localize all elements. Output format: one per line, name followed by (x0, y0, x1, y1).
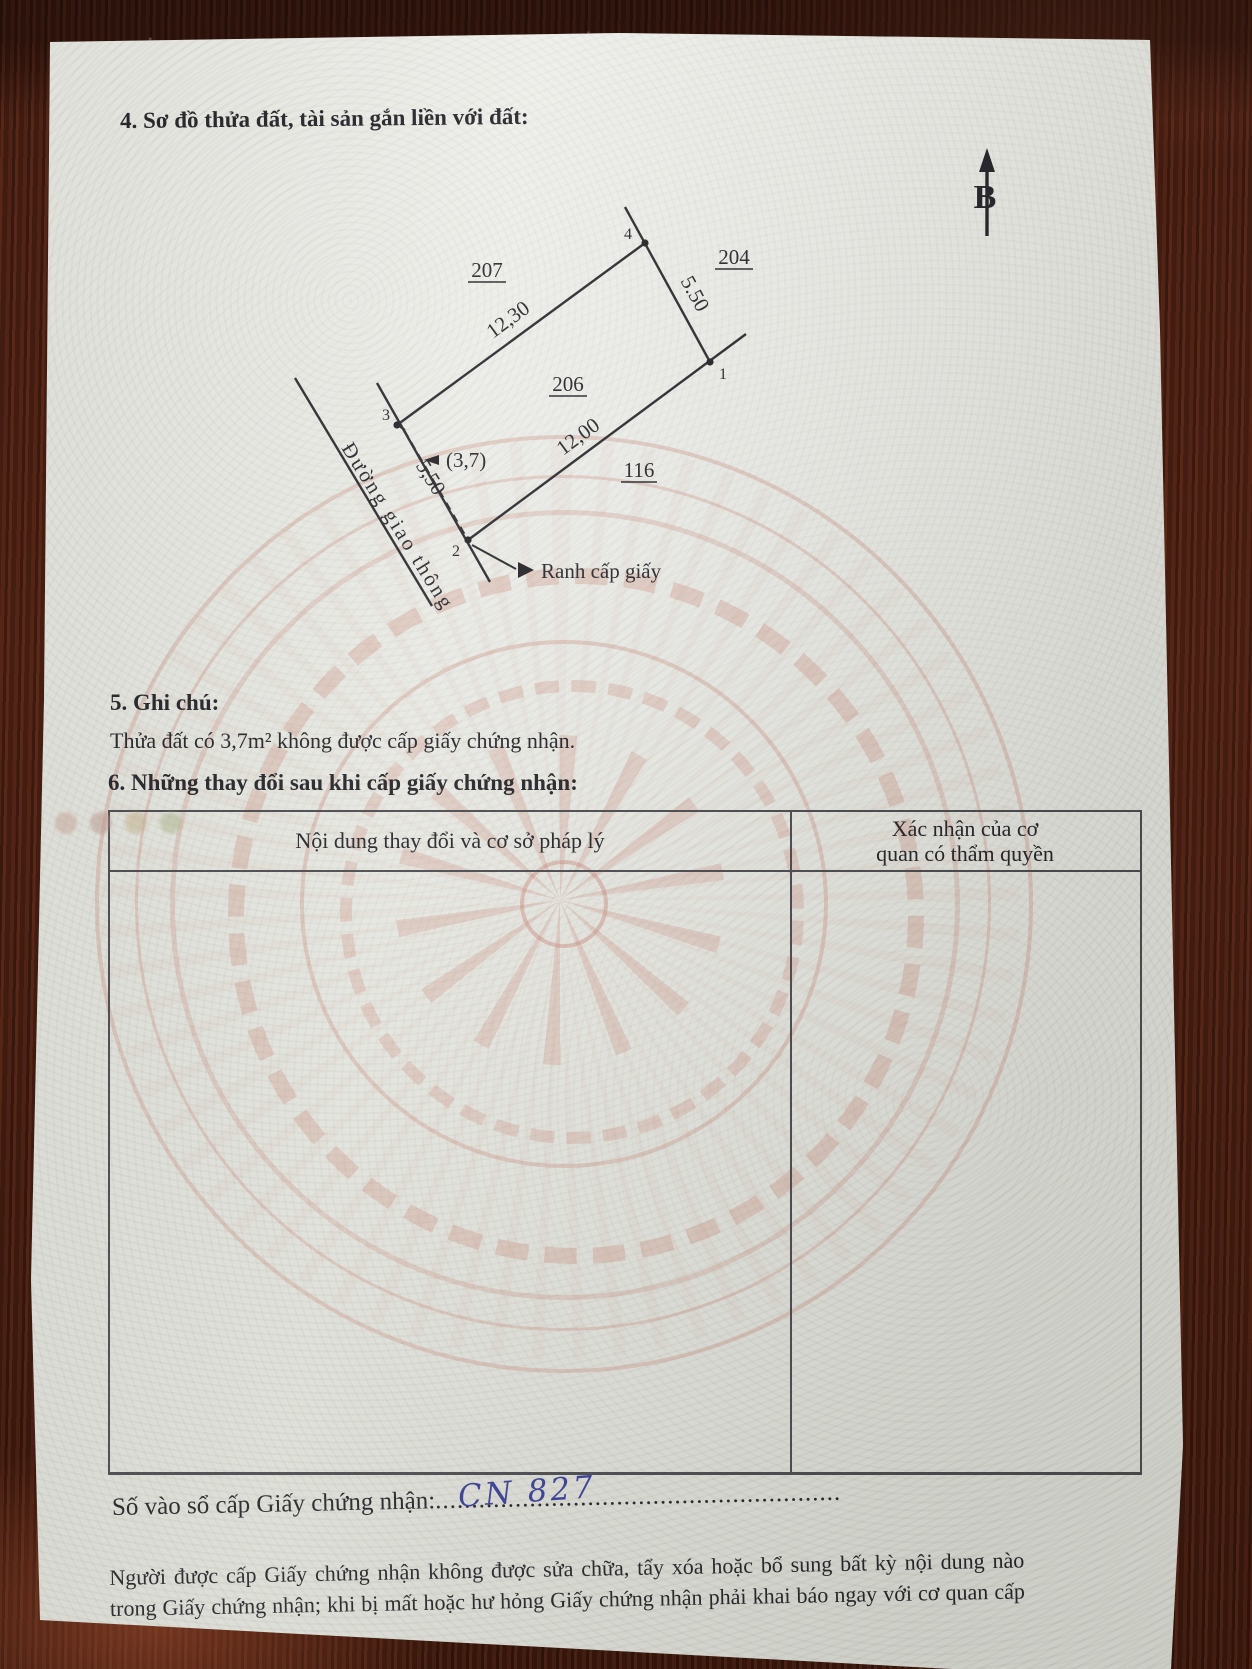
plot-side-2-1-extended (468, 334, 746, 540)
plot-side-3-4 (397, 243, 645, 425)
north-label: B (974, 179, 997, 216)
section5-title: 5. Ghi chú: (110, 690, 219, 716)
fist-emoji-icon (90, 812, 112, 834)
footer-note: Người được cấp Giấy chứng nhận không đượ… (109, 1544, 1026, 1655)
vertex-4-node (641, 239, 648, 246)
col2-header-line1: Xác nhận của cơ (892, 816, 1039, 841)
parcel-116-label: 116 (624, 458, 655, 482)
parcel-206-label: 206 (552, 372, 584, 396)
vertex-4-label: 4 (624, 226, 632, 243)
vertex-3-node (393, 421, 400, 428)
thumbs-up-emoji-icon (20, 812, 42, 834)
dim-side-3-4: 12,30 (482, 296, 534, 343)
vertex-1-label: 1 (719, 366, 727, 383)
north-arrow: B (968, 146, 1008, 238)
footer-note-line2: Giấy chứng nhận; khi bị mất hoặc hư hỏng… (110, 1579, 1025, 1653)
boundary-callout-arrow-icon (518, 562, 534, 578)
changes-table-col2-header: Xác nhận của cơ quan có thẩm quyền (790, 812, 1140, 870)
reaction-emoji-overlay (20, 812, 191, 839)
vertex-1-node (706, 358, 713, 365)
vertex-2-label: 2 (452, 543, 460, 560)
col1-header-text: Nội dung thay đổi và cơ sở pháp lý (295, 828, 604, 853)
photo-of-land-certificate-page: 4. Sơ đồ thửa đất, tài sản gắn liền với … (0, 0, 1252, 1669)
boundary-callout-leader (472, 545, 516, 569)
parcel-204-label: 204 (718, 245, 750, 269)
thumbs-up-emoji-icon (125, 812, 147, 834)
vertex-2-node (464, 536, 471, 543)
excluded-area-label: (3,7) (446, 448, 486, 472)
section6-title: 6. Những thay đổi sau khi cấp giấy chứng… (108, 770, 578, 796)
certificate-paper: 4. Sơ đồ thửa đất, tài sản gắn liền với … (0, 0, 1252, 1669)
registry-label: Số vào sổ cấp Giấy chứng nhận: (112, 1487, 436, 1521)
boundary-callout-label: Ranh cấp giấy (541, 559, 662, 583)
road-name-label: Đường giao thông (337, 438, 460, 615)
north-arrow-head-icon (979, 148, 995, 172)
changes-table-col1-header: Nội dung thay đổi và cơ sở pháp lý (110, 812, 790, 870)
parcel-207-label: 207 (471, 258, 503, 282)
changes-table: Nội dung thay đổi và cơ sở pháp lý Xác n… (108, 810, 1142, 1475)
changes-table-col2-cell-empty (790, 870, 1140, 1472)
dim-side-2-1: 12,00 (552, 413, 604, 460)
praying-hands-emoji-icon (55, 812, 77, 834)
col2-header-line2: quan có thẩm quyền (876, 841, 1054, 866)
section4-title: 4. Sơ đồ thửa đất, tài sản gắn liền với … (120, 104, 529, 134)
thumbs-up-emoji-icon (160, 812, 182, 834)
plot-diagram: 4 1 3 2 207 204 206 116 12,30 5.50 12,00… (270, 180, 790, 620)
vertex-3-label: 3 (382, 407, 390, 424)
changes-table-col1-cell-empty (110, 870, 790, 1472)
section5-body: Thửa đất có 3,7m² không được cấp giấy ch… (110, 728, 575, 754)
